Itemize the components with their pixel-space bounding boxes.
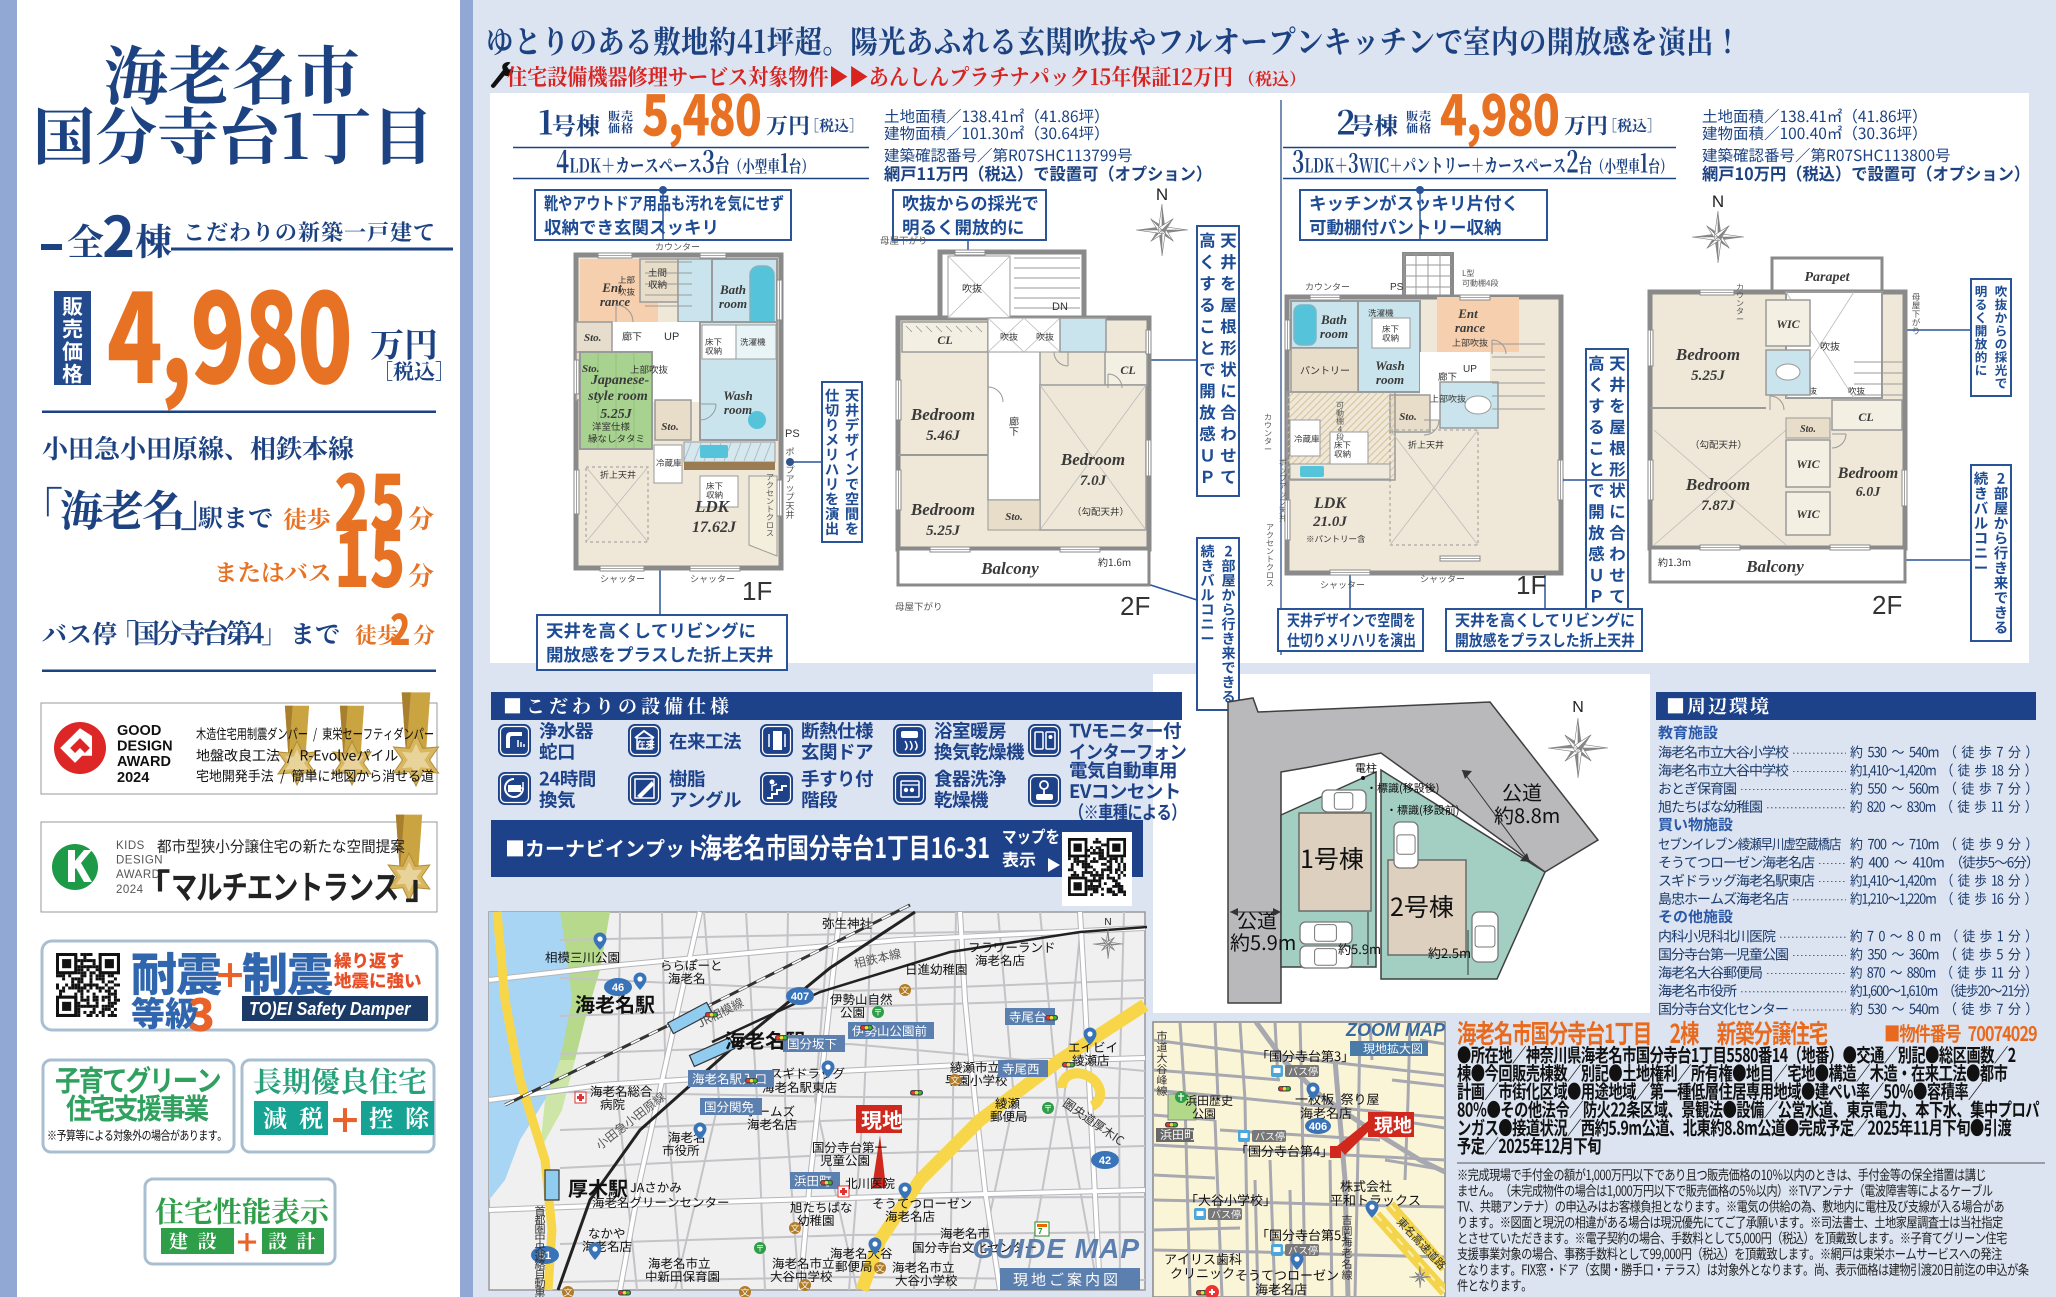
svg-text:rance: rance	[1455, 320, 1486, 335]
svg-text:GUIDE MAP: GUIDE MAP	[972, 1233, 1140, 1264]
svg-text:UP: UP	[664, 331, 679, 343]
svg-text:Wash: Wash	[1375, 358, 1404, 373]
svg-text:DESIGN: DESIGN	[117, 739, 173, 755]
svg-text:WIC: WIC	[1796, 507, 1820, 521]
svg-text:DN: DN	[1052, 301, 1068, 313]
svg-text:Bedroom: Bedroom	[1837, 465, 1898, 482]
svg-text:Sto.: Sto.	[1005, 511, 1022, 523]
svg-text:Sto.: Sto.	[584, 332, 601, 344]
svg-text:AWARD: AWARD	[116, 869, 160, 881]
svg-text:CL: CL	[1858, 410, 1873, 424]
svg-text:Wash: Wash	[723, 388, 752, 403]
svg-text:CL: CL	[1120, 363, 1135, 377]
svg-text:Balcony: Balcony	[1745, 557, 1804, 576]
svg-text:N: N	[1104, 917, 1111, 928]
svg-text:Bedroom: Bedroom	[1685, 475, 1750, 494]
svg-text:406: 406	[1309, 1121, 1327, 1133]
svg-text:style room: style room	[587, 389, 648, 404]
svg-text:KIDS: KIDS	[116, 840, 145, 852]
svg-text:Bedroom: Bedroom	[910, 405, 975, 424]
svg-text:room: room	[1376, 372, 1404, 387]
svg-text:5.25J: 5.25J	[600, 407, 633, 422]
svg-text:UP: UP	[1463, 364, 1477, 375]
svg-text:N: N	[1156, 185, 1168, 204]
svg-text:LDK: LDK	[694, 497, 731, 516]
svg-text:Bedroom: Bedroom	[1675, 345, 1740, 364]
svg-text:TO)EI Safety Damper: TO)EI Safety Damper	[249, 998, 412, 1019]
svg-text:21.0J: 21.0J	[1312, 514, 1347, 530]
svg-text:17.62J: 17.62J	[692, 519, 737, 536]
svg-text:room: room	[719, 296, 747, 311]
svg-text:5.25J: 5.25J	[926, 523, 960, 539]
svg-text:PS: PS	[785, 428, 800, 440]
svg-text:Sto.: Sto.	[661, 421, 678, 433]
svg-text:2024: 2024	[117, 770, 149, 786]
svg-text:Balcony: Balcony	[980, 559, 1039, 578]
svg-text:rance: rance	[600, 294, 631, 309]
svg-text:7.87J: 7.87J	[1701, 498, 1735, 514]
svg-text:room: room	[1320, 326, 1348, 341]
svg-text:7.0J: 7.0J	[1080, 473, 1107, 489]
svg-text:2F: 2F	[1120, 591, 1150, 621]
svg-text:2024: 2024	[116, 884, 144, 896]
svg-text:1F: 1F	[1516, 570, 1546, 600]
svg-text:N: N	[1712, 192, 1724, 211]
svg-text:407: 407	[791, 991, 809, 1003]
svg-text:N: N	[1572, 699, 1584, 716]
svg-text:PS: PS	[1390, 282, 1404, 293]
svg-text:WIC: WIC	[1776, 317, 1800, 331]
svg-text:Bath: Bath	[1320, 312, 1347, 327]
svg-text:5.25J: 5.25J	[1691, 368, 1725, 384]
svg-text:Japanese-: Japanese-	[590, 373, 650, 388]
svg-text:GOOD: GOOD	[117, 723, 161, 739]
svg-text:Sto.: Sto.	[1800, 424, 1816, 435]
svg-text:Bedroom: Bedroom	[910, 500, 975, 519]
svg-text:Parapet: Parapet	[1804, 270, 1850, 285]
svg-text:ZOOM MAP: ZOOM MAP	[1345, 1020, 1446, 1040]
svg-text:AWARD: AWARD	[117, 754, 171, 770]
svg-text:1F: 1F	[742, 576, 772, 606]
svg-text:Bedroom: Bedroom	[1060, 450, 1125, 469]
svg-text:CL: CL	[937, 333, 952, 347]
svg-text:42: 42	[1099, 1155, 1111, 1167]
svg-text:WIC: WIC	[1796, 457, 1820, 471]
svg-text:DESIGN: DESIGN	[116, 855, 163, 867]
svg-text:Ent: Ent	[1457, 306, 1478, 321]
svg-text:5.46J: 5.46J	[926, 428, 960, 444]
svg-text:Sto.: Sto.	[1399, 411, 1416, 423]
svg-text:46: 46	[612, 982, 624, 994]
svg-text:room: room	[724, 402, 752, 417]
svg-text:2F: 2F	[1872, 590, 1902, 620]
svg-text:6.0J: 6.0J	[1856, 485, 1882, 500]
svg-text:LDK: LDK	[1313, 495, 1347, 512]
svg-text:Bath: Bath	[719, 282, 746, 297]
